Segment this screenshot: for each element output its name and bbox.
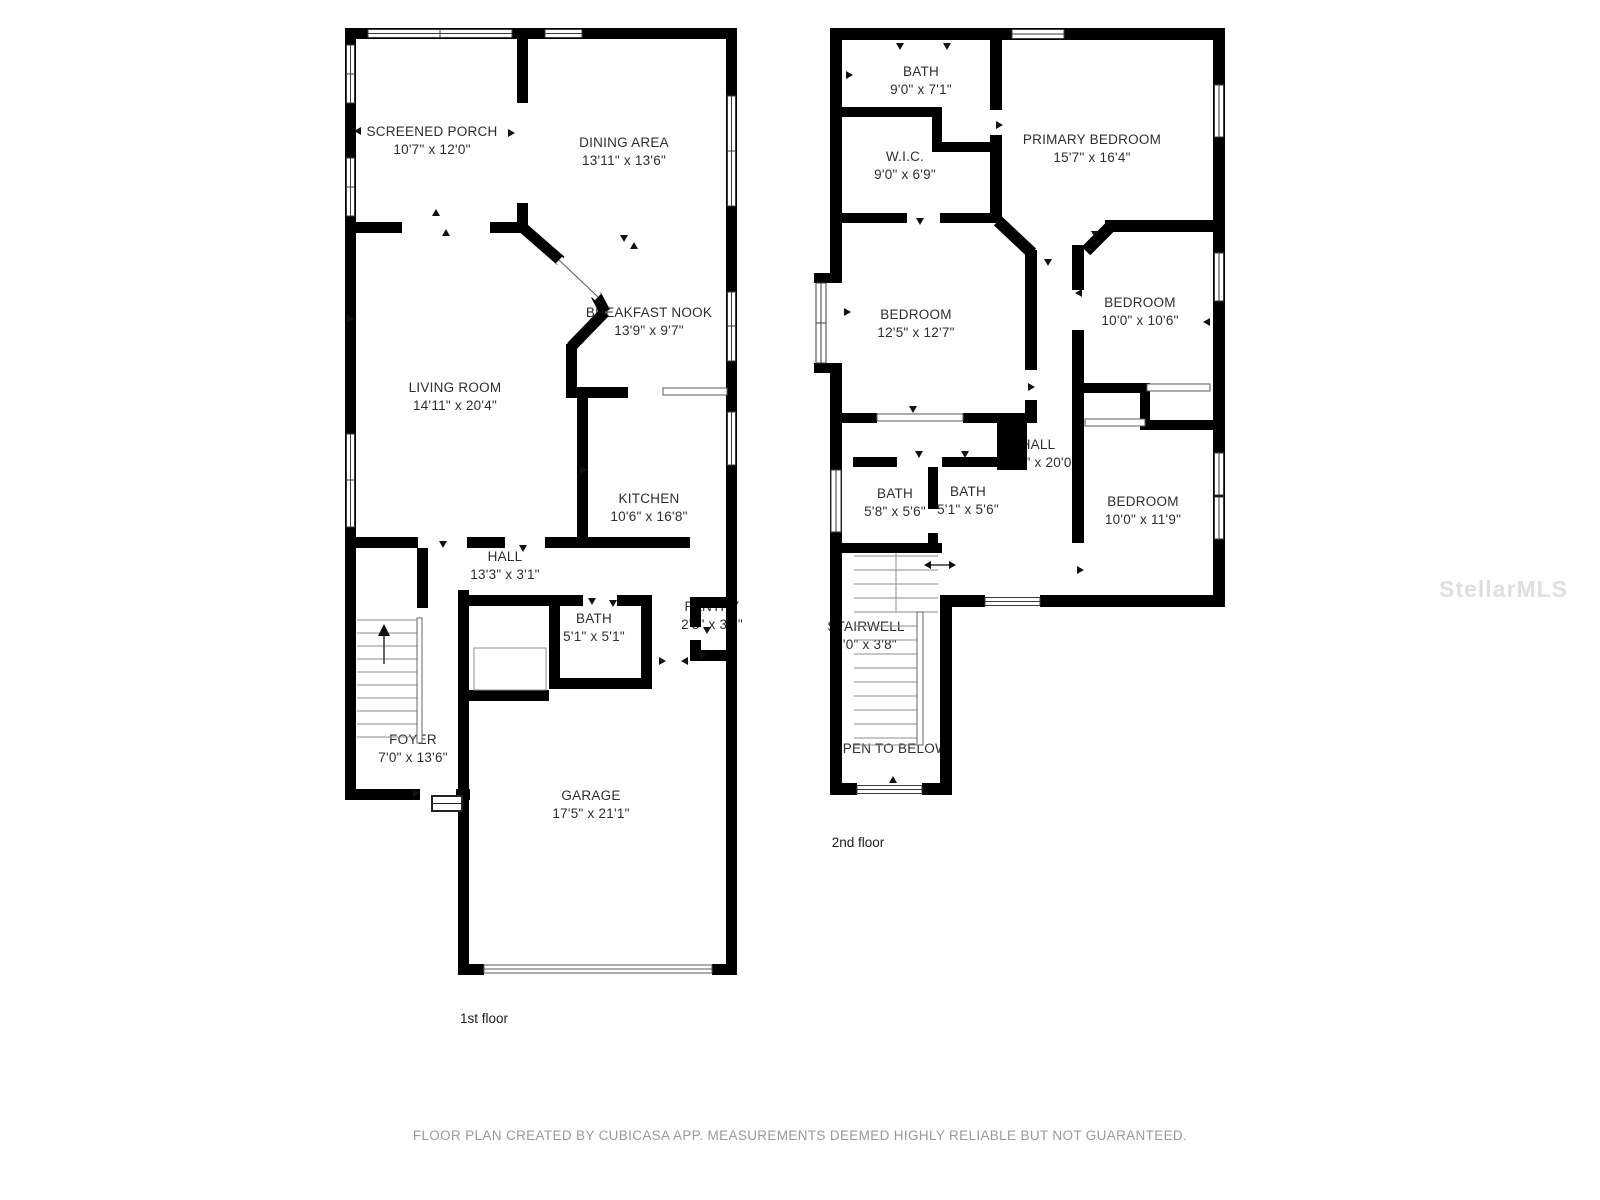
room-name: SCREENED PORCH [366,123,497,141]
floor2-caption: 2nd floor [832,835,885,850]
room-label-bedroom-middle: BEDROOM 12'5" x 12'7" [877,306,954,342]
room-label-pantry: PANTRY 2'3" x 3'3" [681,598,743,634]
room-dims: 10'7" x 12'0" [366,141,497,159]
room-label-kitchen: KITCHEN 10'6" x 16'8" [610,490,687,526]
room-name: DINING AREA [579,134,669,152]
room-label-bath-2f-right: BATH 5'1" x 5'6" [937,483,999,519]
room-name: BATH [864,485,926,503]
room-dims: 17'5" x 21'1" [552,805,629,823]
room-name: FOYER [378,731,448,749]
room-dims: 5'8" x 5'6" [864,503,926,521]
room-dims: 9'0" x 6'9" [874,166,936,184]
room-label-stairwell: STAIRWELL 0'0" x 3'8" [827,618,905,654]
room-label-open-to-below: OPEN TO BELOW [832,740,948,758]
room-dims: 0'0" x 3'8" [827,636,905,654]
room-dims: 5'1" x 5'1" [563,628,625,646]
room-name: BEDROOM [1101,294,1178,312]
room-label-wic: W.I.C. 9'0" x 6'9" [874,148,936,184]
room-label-hall-1: HALL 13'3" x 3'1" [470,548,540,584]
room-dims: 2'3" x 3'3" [681,616,743,634]
room-dims: 10'0" x 10'6" [1101,312,1178,330]
room-dims: 15'7" x 16'4" [1023,149,1161,167]
room-dims: 10'6" x 16'8" [610,508,687,526]
room-label-garage: GARAGE 17'5" x 21'1" [552,787,629,823]
room-dims: 9'0" x 7'1" [890,81,952,99]
labels-layer: SCREENED PORCH 10'7" x 12'0" DINING AREA… [0,0,1600,1200]
room-dims: 14'11" x 20'4" [409,397,502,415]
disclaimer-text: FLOOR PLAN CREATED BY CUBICASA APP. MEAS… [0,1128,1600,1143]
room-dims: 5'1" x 5'6" [937,501,999,519]
room-dims: 7'0" x 13'6" [378,749,448,767]
room-label-breakfast-nook: BREAKFAST NOOK 13'9" x 9'7" [586,304,712,340]
room-label-dining-area: DINING AREA 13'11" x 13'6" [579,134,669,170]
room-name: LIVING ROOM [409,379,502,397]
room-name: HALL [470,548,540,566]
room-name: GARAGE [552,787,629,805]
floor1-caption: 1st floor [460,1011,508,1026]
room-name: W.I.C. [874,148,936,166]
room-name: PANTRY [681,598,743,616]
room-dims: 13'3" x 3'1" [470,566,540,584]
room-name: BEDROOM [1105,493,1181,511]
room-name: KITCHEN [610,490,687,508]
room-name: HALL [999,436,1076,454]
room-name: BREAKFAST NOOK [586,304,712,322]
floor-plan-page: SCREENED PORCH 10'7" x 12'0" DINING AREA… [0,0,1600,1200]
room-label-foyer: FOYER 7'0" x 13'6" [378,731,448,767]
room-dims: 12'5" x 12'7" [877,324,954,342]
room-name: STAIRWELL [827,618,905,636]
room-dims: 13'9" x 9'7" [586,322,712,340]
room-name: BATH [937,483,999,501]
room-dims: 7'10" x 20'0" [999,454,1076,472]
room-name: OPEN TO BELOW [832,740,948,758]
room-dims: 10'0" x 11'9" [1105,511,1181,529]
room-dims: 13'11" x 13'6" [579,152,669,170]
room-label-primary-bedroom: PRIMARY BEDROOM 15'7" x 16'4" [1023,131,1161,167]
room-label-bedroom-right-bottom: BEDROOM 10'0" x 11'9" [1105,493,1181,529]
room-name: PRIMARY BEDROOM [1023,131,1161,149]
room-label-screened-porch: SCREENED PORCH 10'7" x 12'0" [366,123,497,159]
room-label-bedroom-right-top: BEDROOM 10'0" x 10'6" [1101,294,1178,330]
room-name: BATH [563,610,625,628]
room-label-bath-1: BATH 5'1" x 5'1" [563,610,625,646]
room-label-hall-2: HALL 7'10" x 20'0" [999,436,1076,472]
room-label-bath-2f-top: BATH 9'0" x 7'1" [890,63,952,99]
room-label-bath-2f-left: BATH 5'8" x 5'6" [864,485,926,521]
room-name: BATH [890,63,952,81]
room-label-living-room: LIVING ROOM 14'11" x 20'4" [409,379,502,415]
stellar-mls-watermark: StellarMLS [1439,576,1568,603]
room-name: BEDROOM [877,306,954,324]
